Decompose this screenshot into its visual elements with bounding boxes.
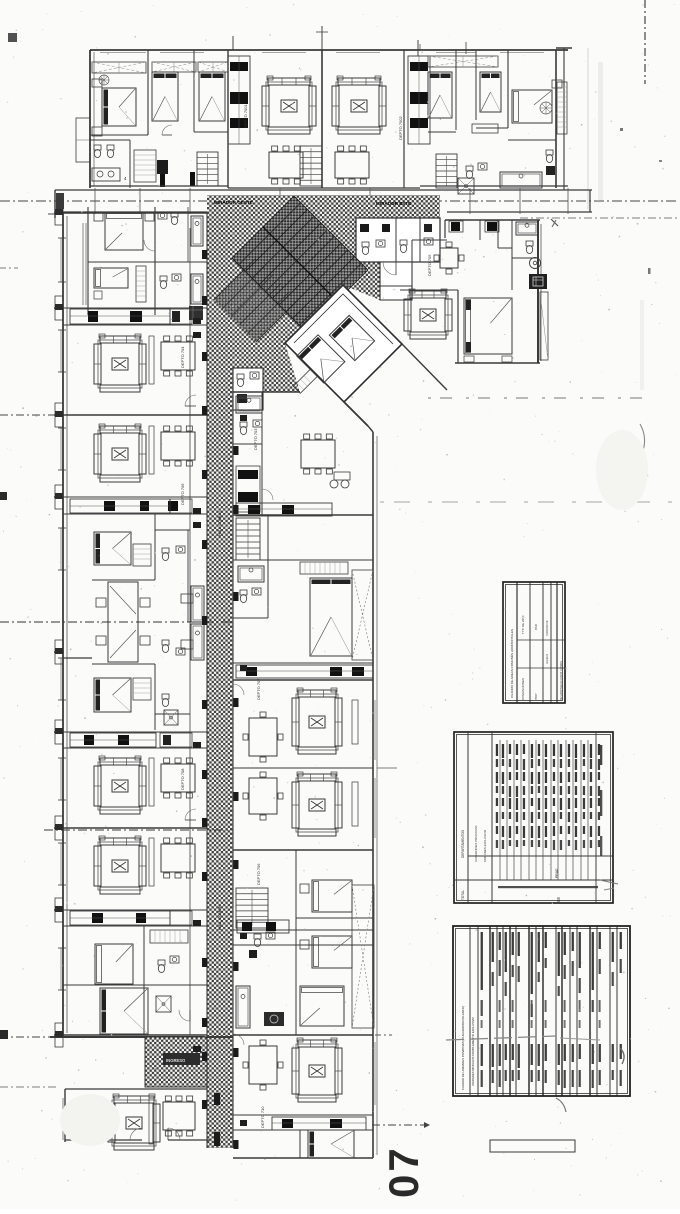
svg-text:TYC DE 2014: TYC DE 2014 — [521, 615, 525, 634]
svg-text:DEPARTAMENTOS: DEPARTAMENTOS — [461, 830, 465, 858]
svg-text:DEPTO 707: DEPTO 707 — [256, 678, 261, 700]
svg-text:INGRESO: INGRESO — [166, 1058, 186, 1063]
svg-text:DEPTO 705: DEPTO 705 — [427, 254, 432, 276]
svg-text:OPERACIONES: OPERACIONES — [521, 678, 525, 700]
svg-text:SUPERFICIES PRIVATIVAS: SUPERFICIES PRIVATIVAS — [474, 825, 478, 862]
svg-text:COMUNES EXCLUSIVO: COMUNES EXCLUSIVO — [483, 829, 487, 862]
svg-text:DEPTO 710: DEPTO 710 — [260, 1106, 265, 1128]
svg-text:DEPTO 709: DEPTO 709 — [256, 863, 261, 885]
svg-text:M2 APROVECH CONST COMUN: M2 APROVECH CONST COMUN — [559, 661, 563, 700]
svg-text:HALL COMUN: HALL COMUN — [218, 511, 222, 536]
svg-text:PRAD: PRAD — [555, 868, 559, 878]
svg-text:PAD: PAD — [534, 623, 538, 630]
svg-text:UNIDADES MODULOS COMPLEMENTO: UNIDADES MODULOS COMPLEMENTO EXCLUSIVO — [471, 1016, 475, 1086]
svg-text:HALL COMUN: HALL COMUN — [218, 905, 222, 930]
svg-text:08: 08 — [556, 897, 561, 902]
svg-text:07: 07 — [380, 1145, 427, 1198]
svg-text:DEPTO 706: DEPTO 706 — [180, 483, 185, 505]
svg-text:CUADRO DE AREAS COMUNES HORIZO: CUADRO DE AREAS COMUNES HORIZONTALES — [510, 629, 514, 698]
svg-text:mm40x4: mm40x4 — [545, 653, 549, 664]
svg-text:SUPERFICIE: SUPERFICIE — [545, 620, 549, 636]
svg-text:7007: 7007 — [534, 693, 538, 700]
svg-text:TOTAL: TOTAL — [461, 890, 465, 900]
svg-text:DEPTO 7002: DEPTO 7002 — [398, 116, 403, 140]
svg-text:DEPTO 7001: DEPTO 7001 — [243, 104, 248, 128]
svg-text:DEPTO 708: DEPTO 708 — [180, 768, 185, 790]
svg-text:DEPTO 703: DEPTO 703 — [253, 428, 258, 450]
svg-text:MIRADOR OESTE: MIRADOR OESTE — [214, 200, 253, 205]
svg-text:MIRADOR ESTE: MIRADOR ESTE — [376, 201, 411, 206]
svg-text:CUADRO DE UNIDADES PRIVATIVAS: CUADRO DE UNIDADES PRIVATIVAS (PLAN ARRI… — [461, 1006, 465, 1090]
